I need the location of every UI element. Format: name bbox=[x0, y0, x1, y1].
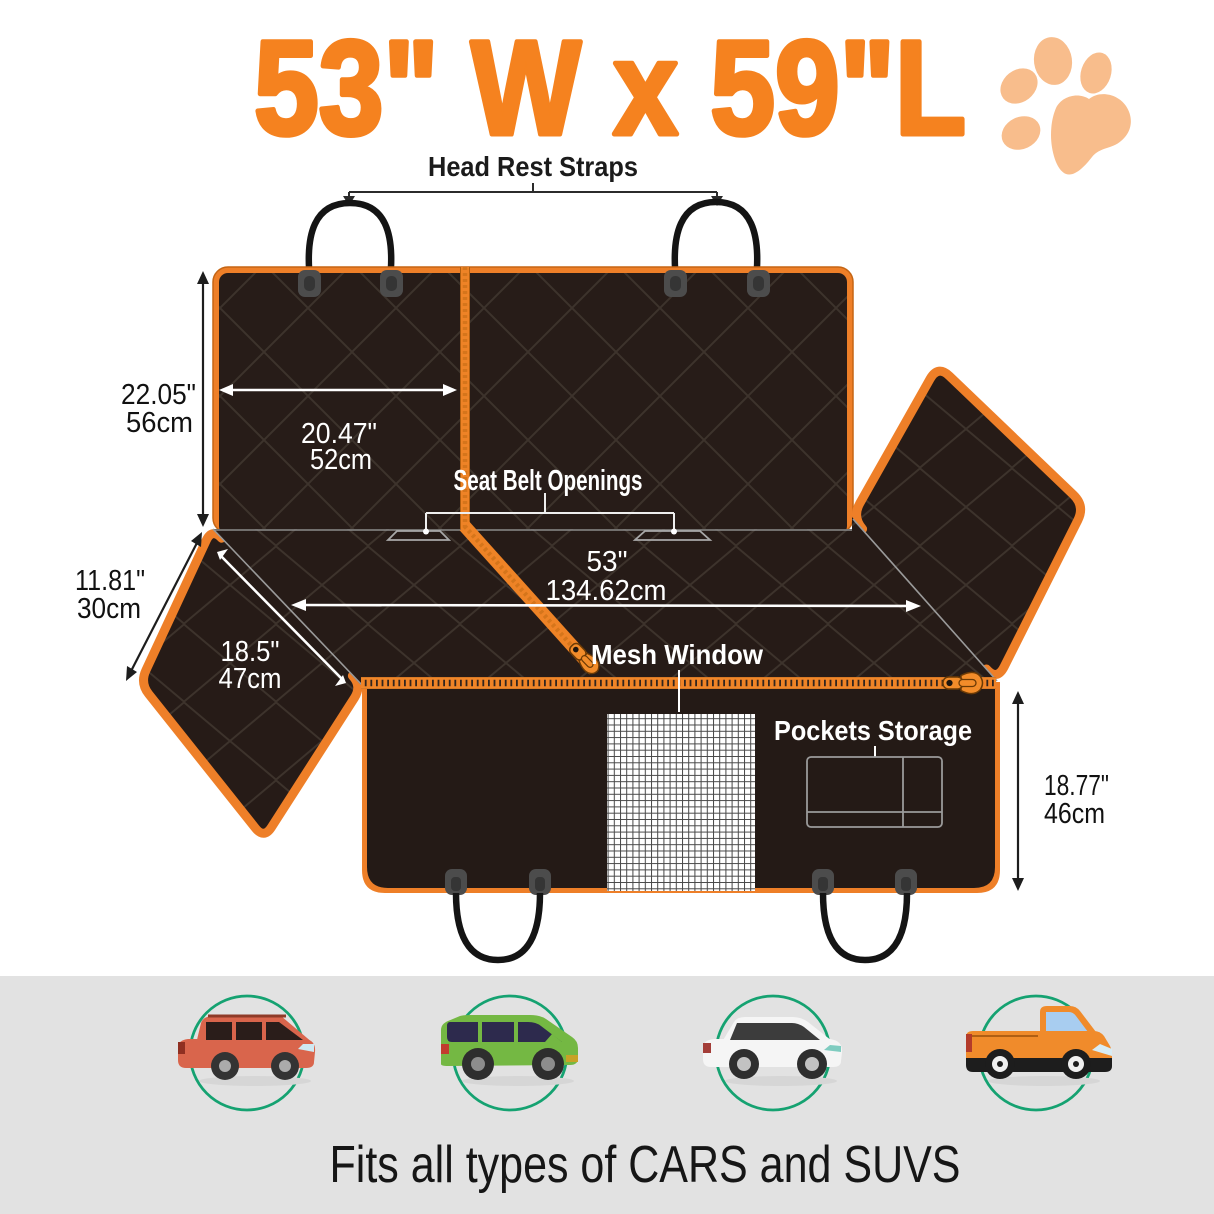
svg-text:53": 53" bbox=[587, 546, 628, 578]
svg-text:47cm: 47cm bbox=[219, 663, 282, 695]
svg-text:46cm: 46cm bbox=[1044, 798, 1105, 830]
svg-text:30cm: 30cm bbox=[77, 593, 141, 625]
svg-text:Seat Belt Openings: Seat Belt Openings bbox=[454, 465, 643, 497]
svg-text:52cm: 52cm bbox=[310, 444, 372, 476]
svg-text:56cm: 56cm bbox=[126, 407, 193, 439]
svg-text:Head Rest Straps: Head Rest Straps bbox=[428, 151, 638, 182]
svg-text:134.62cm: 134.62cm bbox=[546, 575, 667, 607]
svg-text:Fits all types of CARS and SUV: Fits all types of CARS and SUVS bbox=[330, 1136, 961, 1194]
svg-text:53" W x 59"L: 53" W x 59"L bbox=[254, 14, 966, 163]
svg-text:Pockets Storage: Pockets Storage bbox=[774, 715, 972, 746]
svg-text:Mesh Window: Mesh Window bbox=[591, 639, 763, 670]
